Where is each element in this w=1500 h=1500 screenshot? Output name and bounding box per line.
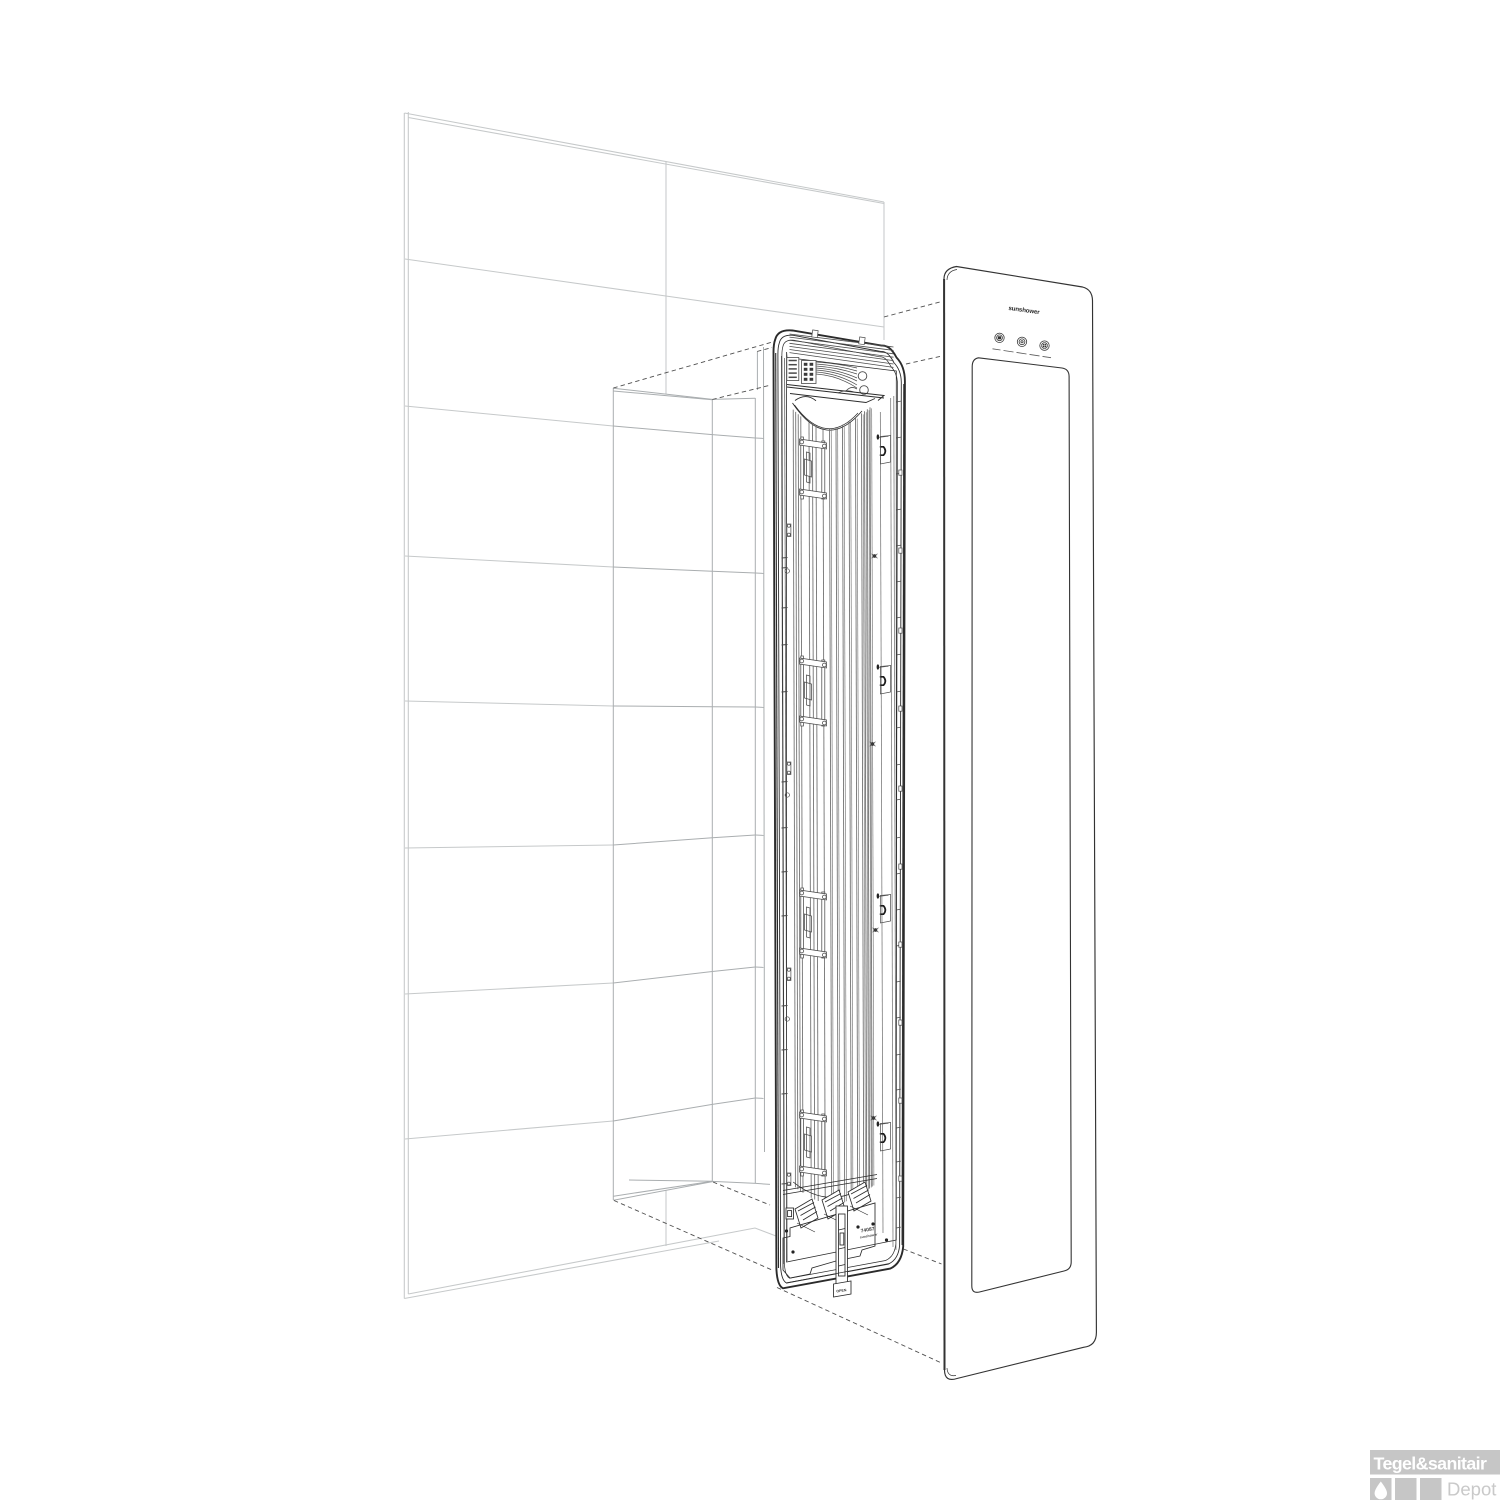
svg-text:Tegel&sanitair: Tegel&sanitair xyxy=(1374,1454,1487,1474)
svg-text:Depot: Depot xyxy=(1447,1479,1496,1500)
